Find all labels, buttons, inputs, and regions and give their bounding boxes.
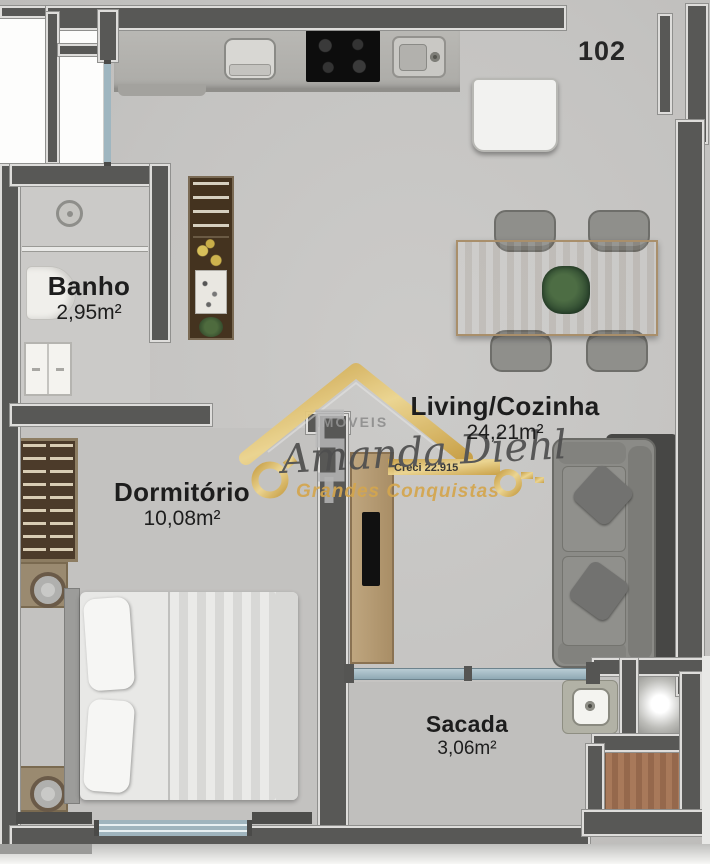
wall-right-main [676, 120, 704, 696]
logo-key-bow-right [497, 472, 519, 494]
shower-head-center [67, 211, 73, 217]
table-plant [542, 266, 590, 314]
wall-banho-bottom [10, 404, 212, 426]
vanity-handle-right [56, 368, 64, 371]
dormitorio-area: 10,08m² [72, 508, 292, 531]
railing-post-right [586, 662, 600, 684]
room-label-banho: Banho 2,95m² [19, 272, 159, 325]
banho-name: Banho [19, 272, 159, 300]
bed-blanket [170, 592, 276, 800]
watermark-creci: Creci 22.915 [394, 462, 458, 474]
wall-top-main [46, 6, 566, 30]
floor-plan: IMÓVEIS Creci 22.915 Amanda Diehl Grande… [0, 0, 710, 864]
refrigerator [472, 78, 558, 152]
bed-pillow-bottom [83, 699, 135, 794]
service-wood-floor [604, 750, 682, 812]
wall-service-divider [620, 658, 638, 742]
service-faucet [585, 701, 595, 711]
bathroom-vanity [24, 342, 72, 396]
wall-left-outer [0, 164, 20, 848]
wall-service-bottom [582, 810, 710, 836]
shower-head [56, 200, 83, 227]
dormitorio-name: Dormitório [72, 478, 292, 506]
entry-glass-door [104, 60, 111, 166]
sofa-backrest [628, 446, 652, 660]
bedroom-window-sill-left [16, 812, 92, 824]
nightstand-top [18, 562, 68, 608]
room-label-dormitorio: Dormitório 10,08m² [72, 478, 292, 531]
counter-ledge [118, 84, 206, 96]
wall-entry-left [46, 12, 59, 164]
bedroom-window-sill-right [252, 812, 312, 824]
wardrobe-clothes-left [23, 444, 46, 556]
tv [362, 512, 380, 586]
dining-table [456, 240, 658, 336]
bottom-left-shadow [0, 844, 92, 854]
bed-headboard [64, 588, 80, 804]
room-label-sacada: Sacada 3,06m² [387, 712, 547, 759]
pantry-panel [195, 270, 227, 314]
dining-chair-4 [586, 330, 648, 372]
banho-area: 2,95m² [19, 302, 159, 325]
bed-foot-fold [276, 592, 298, 800]
wardrobe [18, 438, 78, 562]
balcony-railing-glass [348, 668, 600, 680]
sink-faucet [430, 52, 440, 62]
kitchen-sink [392, 36, 446, 78]
unit-number: 102 [578, 36, 626, 67]
living-area: 24,21m² [380, 422, 630, 445]
vanity-handle-left [32, 368, 40, 371]
wall-dorm-living [318, 414, 348, 828]
pantry-bottles [193, 182, 229, 238]
bed-pillow-top [83, 597, 135, 692]
dining-chair-3 [490, 330, 552, 372]
pantry-shelf [188, 176, 234, 340]
lamp-top [30, 572, 66, 608]
pantry-plant [199, 317, 223, 337]
sacada-name: Sacada [387, 712, 547, 737]
service-sink-block [562, 680, 618, 734]
sofa-armrest-top [558, 442, 626, 464]
sink-basin [399, 44, 427, 71]
wall-service-middle [592, 734, 692, 752]
sofa [552, 438, 656, 668]
tv-rack [350, 452, 394, 664]
logo-key-tooth-right2 [535, 477, 544, 483]
entry-door-leaf [658, 14, 672, 114]
wall-entry-right [98, 10, 118, 62]
wall-banho-top [10, 164, 170, 186]
living-name: Living/Cozinha [380, 392, 630, 420]
nightstand-bottom [18, 766, 68, 812]
right-edge-strip [702, 656, 710, 848]
counter-appliance [224, 38, 276, 80]
logo-key-tooth-right1 [521, 472, 533, 479]
bottom-page-fade [0, 844, 710, 864]
wall-service-right [680, 672, 702, 818]
shower-glass-partition [22, 246, 148, 252]
room-label-living: Living/Cozinha 24,21m² [380, 392, 630, 445]
cooktop [306, 30, 380, 82]
railing-post-left [344, 664, 354, 683]
bedroom-window-glass [94, 820, 252, 836]
wardrobe-clothes-right [50, 444, 73, 556]
creci-ribbon [388, 459, 500, 475]
bed [64, 588, 298, 804]
lamp-bottom [30, 776, 66, 812]
sacada-area: 3,06m² [387, 739, 547, 760]
railing-post-mid [464, 666, 472, 681]
appliance-tray [229, 64, 271, 76]
pantry-fruit [190, 238, 232, 270]
